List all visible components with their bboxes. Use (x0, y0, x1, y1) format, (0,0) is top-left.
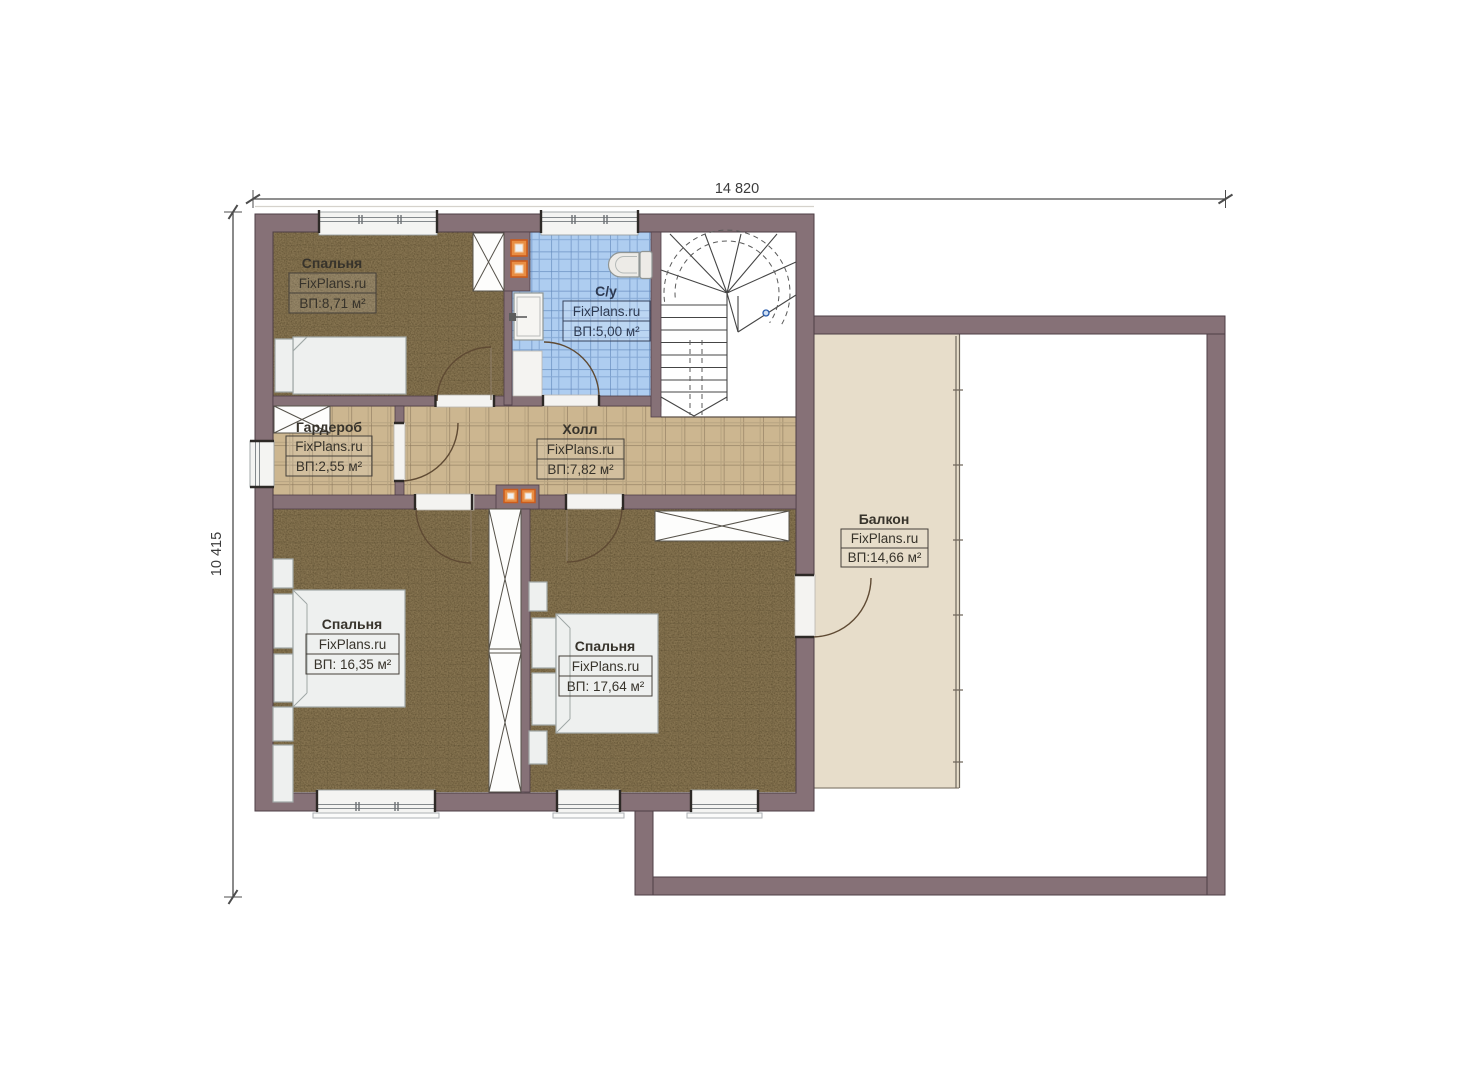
svg-text:С/у: С/у (595, 283, 617, 299)
svg-text:ВП:2,55 м²: ВП:2,55 м² (296, 459, 363, 474)
svg-text:FixPlans.ru: FixPlans.ru (573, 304, 641, 319)
svg-text:ВП:7,82 м²: ВП:7,82 м² (547, 462, 614, 477)
svg-text:FixPlans.ru: FixPlans.ru (299, 276, 367, 291)
svg-text:ВП: 17,64 м²: ВП: 17,64 м² (567, 679, 645, 694)
svg-text:FixPlans.ru: FixPlans.ru (572, 659, 640, 674)
svg-text:FixPlans.ru: FixPlans.ru (295, 439, 363, 454)
svg-text:Гардероб: Гардероб (296, 419, 363, 435)
svg-text:Холл: Холл (562, 421, 597, 437)
svg-text:ВП:5,00 м²: ВП:5,00 м² (573, 324, 640, 339)
svg-text:ВП:14,66 м²: ВП:14,66 м² (848, 550, 922, 565)
svg-text:ВП:8,71 м²: ВП:8,71 м² (299, 296, 366, 311)
svg-text:Балкон: Балкон (859, 511, 910, 527)
svg-text:Спальня: Спальня (322, 616, 382, 632)
svg-text:Спальня: Спальня (302, 255, 362, 271)
svg-text:FixPlans.ru: FixPlans.ru (851, 531, 919, 546)
svg-text:FixPlans.ru: FixPlans.ru (547, 442, 615, 457)
svg-text:FixPlans.ru: FixPlans.ru (319, 637, 387, 652)
svg-text:ВП: 16,35 м²: ВП: 16,35 м² (314, 657, 392, 672)
svg-text:Спальня: Спальня (575, 638, 635, 654)
svg-text:10 415: 10 415 (209, 532, 225, 576)
svg-text:14 820: 14 820 (715, 181, 759, 197)
